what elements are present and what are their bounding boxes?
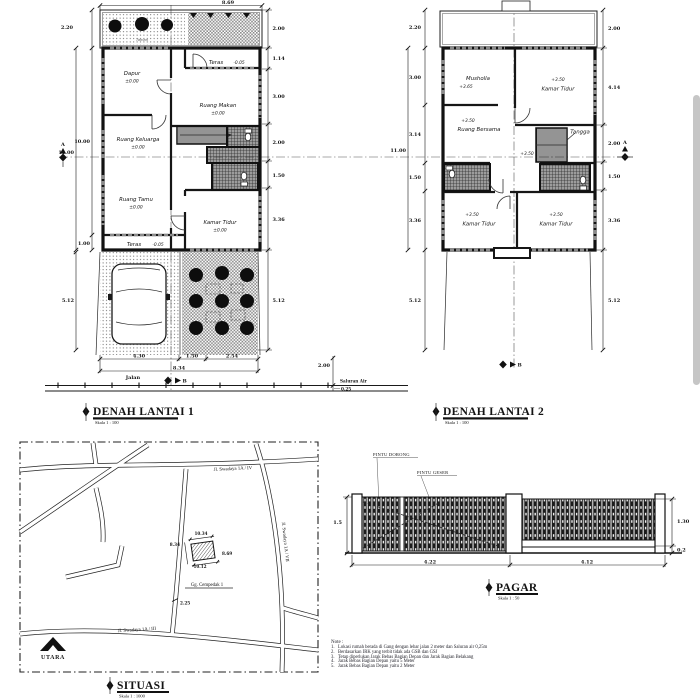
dimension-label: 5.12 <box>409 298 422 304</box>
pagar-elevation: PINTU DORONG PINTU GESER 1.5 <box>333 452 689 601</box>
diamond-marker-icon <box>499 361 507 369</box>
drain-label: Saluran Air <box>340 379 368 384</box>
dimension-label: 1.00 <box>78 241 91 247</box>
toilet-icon <box>245 129 252 141</box>
room-level: ±0.00 <box>211 111 225 117</box>
road-name: Jl. Swadaya 1A / IV <box>214 466 253 473</box>
plan1-title: DENAH LANTAI 1 <box>93 406 194 418</box>
plan1-floorplan: Taman <box>45 0 408 425</box>
dimension-label: 3.36 <box>273 217 286 223</box>
plan2-scale: Skala 1 : 100 <box>445 420 469 425</box>
dimension-label: 4.12 <box>581 560 594 566</box>
plan2-doors <box>489 108 530 209</box>
room-label: Ruang Tamu <box>119 197 153 203</box>
dimension-label: 2.20 <box>409 25 422 31</box>
room-label: Teras <box>209 60 223 66</box>
plan1-road-marker-b: B <box>164 377 187 385</box>
dimension-label: 2.20 <box>61 25 74 31</box>
room-label: Teras <box>127 242 141 248</box>
plan2-title-block: DENAH LANTAI 2 Skala 1 : 100 <box>433 403 545 425</box>
situasi-scale: Skala 1 : 1000 <box>119 694 146 699</box>
gate-panel <box>404 497 506 551</box>
dimension-label: 1.5 <box>333 520 342 526</box>
road-label: Jalan <box>125 375 141 381</box>
room-label: Musholla <box>466 76 490 82</box>
arrow-right-icon <box>510 362 516 368</box>
dimension-label: 1.30 <box>677 519 690 525</box>
plan1-stairs <box>177 126 232 144</box>
fence-structure <box>345 494 682 553</box>
plan2-stairs <box>536 128 575 162</box>
room-level: ±0.00 <box>131 145 145 151</box>
situasi-title: SITUASI <box>117 680 165 692</box>
note-item: 5. Jarak Bebas Bagian Depan yaitu 2 Mete… <box>331 665 671 670</box>
plan2-roof-outline <box>440 1 597 47</box>
lane-name: Gg. Cempedak 1 <box>191 583 224 588</box>
scrollbar-thumb[interactable] <box>693 95 700 385</box>
dimension-label: 3.14 <box>409 132 422 138</box>
notes-block: Note : 1. Lokasi rumah berada di Gang de… <box>331 640 671 670</box>
room-level: +3.50 <box>551 77 565 83</box>
room-label: Kamar Tidur <box>463 222 497 228</box>
tree-icon <box>109 20 122 33</box>
pagar-title-block: PAGAR Skala 1 : 50 <box>486 579 538 601</box>
garden-label: Taman <box>136 38 149 42</box>
dimension-label: 1.50 <box>186 354 199 360</box>
dimension-label: 3.36 <box>608 218 621 224</box>
dimension-label: 1.14 <box>273 56 286 62</box>
dimension-label: 3.36 <box>409 218 422 224</box>
room-label: Ruang Bersama <box>458 127 501 133</box>
dimension-label: 1.50 <box>273 173 286 179</box>
garden-trees <box>189 266 254 335</box>
plan1-scale: Skala 1 : 100 <box>95 420 119 425</box>
dimension-label: 11.00 <box>390 148 406 154</box>
plot-dim: 10.34 <box>194 531 207 536</box>
dimension-label: 2.00 <box>608 26 621 32</box>
situasi-map: 10.34 8.34 10.12 8.69 Jl. Swadaya 1A / I… <box>20 442 318 699</box>
dimension-label: 2.00 <box>318 363 331 369</box>
dimension-label: 1.50 <box>409 175 422 181</box>
gate-label: PINTU DORONG <box>373 452 410 457</box>
drain-size: 0.25 <box>341 387 351 392</box>
plan1-title-block: DENAH LANTAI 1 Skala 1 : 100 <box>83 403 195 425</box>
arrow-up-icon <box>622 146 628 152</box>
room-level: ±0.00 <box>125 79 139 85</box>
road-name: Jl. Swadaya 1A / VII <box>280 522 289 563</box>
dimension-label: 8.69 <box>222 0 235 6</box>
pagar-scale: Skala 1 : 50 <box>498 596 520 601</box>
dimension-label: 8.34 <box>173 366 186 372</box>
dimension-label: 3.00 <box>273 94 286 100</box>
section-letter: A <box>622 140 627 146</box>
dimension-label: 1.50 <box>608 174 621 180</box>
north-label: UTARA <box>41 655 65 661</box>
room-level: +3.50 <box>461 118 475 124</box>
gate-label: PINTU GESER <box>417 470 449 475</box>
plan2-road-marker-b: B <box>499 361 522 369</box>
dimension-label: 3.00 <box>409 75 422 81</box>
room-level: +3.50 <box>549 212 563 218</box>
pagar-title: PAGAR <box>496 582 538 594</box>
tree-icon <box>135 17 149 31</box>
stair-label: Tangga <box>570 130 590 136</box>
drawing-sheet: Taman <box>0 0 700 700</box>
plot-dim: 8.69 <box>222 551 232 556</box>
dimension-label: 2.00 <box>273 26 286 32</box>
room-label: Dapur <box>124 71 141 77</box>
room-label: Ruang Keluarga <box>117 137 160 143</box>
plan2-floorplan: Musholla +3.65 +3.50 Kamar Tidur +3.50 R… <box>390 1 633 425</box>
section-letter: B <box>518 363 522 369</box>
car-icon <box>108 264 170 344</box>
plan2-room-labels: Musholla +3.65 +3.50 Kamar Tidur +3.50 R… <box>458 76 590 228</box>
dimension-label: 10.00 <box>74 139 90 145</box>
plan1-front-garden: Taman <box>100 10 262 48</box>
dimension-label: 4.14 <box>608 85 621 91</box>
section-letter: B <box>183 379 187 385</box>
dimension-label: 5.12 <box>608 298 621 304</box>
plan2-bathrooms <box>444 164 590 191</box>
dimension-label: 4.22 <box>424 560 437 566</box>
plan2-title: DENAH LANTAI 2 <box>443 406 544 418</box>
room-level: ±0.00 <box>213 228 227 234</box>
room-label: Kamar Tidur <box>540 222 574 228</box>
room-label: Kamar Tidur <box>204 220 238 226</box>
plan2-yard-lines <box>444 252 592 350</box>
plot-dim: 8.34 <box>170 542 180 547</box>
lane-width: 2.25 <box>180 601 190 606</box>
dimension-label: 4.30 <box>133 354 146 360</box>
fence-panel <box>522 499 655 540</box>
room-level: -0.05 <box>152 242 164 248</box>
dimension-label: 5.12 <box>273 298 286 304</box>
stair-level: +3.50 <box>520 151 534 157</box>
tree-icon <box>161 19 173 31</box>
plan1-carport <box>96 252 260 355</box>
north-arrow: UTARA <box>40 637 66 661</box>
dimension-label: 2.54 <box>226 354 239 360</box>
architectural-drawing: Taman <box>0 0 700 700</box>
situasi-title-block: SITUASI Skala 1 : 1000 <box>107 677 169 699</box>
room-level: -0.05 <box>233 60 245 66</box>
dimension-label: 5.12 <box>62 298 75 304</box>
room-label: Ruang Makan <box>200 103 237 109</box>
dimension-label: 2.00 <box>608 141 621 147</box>
arrow-right-icon <box>175 378 181 384</box>
dimension-label: 0.2 <box>677 548 686 554</box>
road-strip: Jalan 2.00 Saluran Air 0.25 <box>45 356 408 392</box>
dimension-label: 2.00 <box>273 140 286 146</box>
room-level: ±0.00 <box>129 205 143 211</box>
gate-panel <box>362 497 400 551</box>
room-label: Kamar Tidur <box>542 87 576 93</box>
diamond-marker-icon <box>164 377 172 385</box>
situasi-roads <box>20 443 318 672</box>
room-level: +3.65 <box>459 84 473 90</box>
room-level: +3.50 <box>465 212 479 218</box>
section-letter: A <box>60 142 65 148</box>
plot-dim: 10.12 <box>193 564 206 569</box>
